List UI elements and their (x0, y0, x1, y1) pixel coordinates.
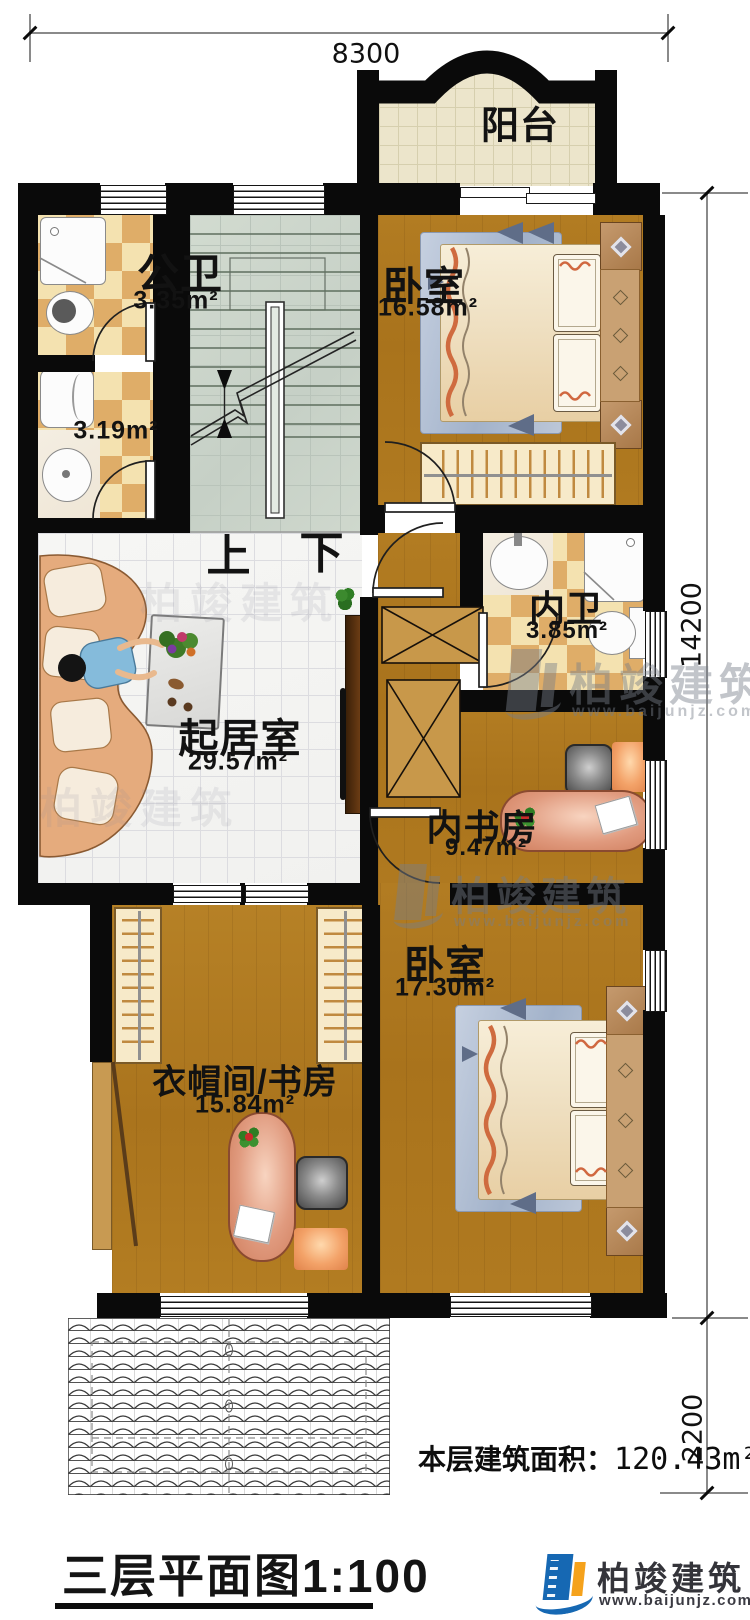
floor-plan-page: 8300 14200 2200 阳台 公卫 3.35m² 3.19m² 卧室 1… (0, 0, 750, 1620)
room-area-bedroom-bottom: 17.30m² (395, 974, 495, 1003)
bouquet-group (159, 631, 198, 712)
dim-ext-line (672, 1317, 748, 1319)
logo-swoosh-icon (533, 1581, 595, 1619)
dim-ext-line (667, 14, 669, 62)
company-logo: 柏竣建筑 www.baijunjz.com (535, 1550, 747, 1616)
room-area-cloak-study: 15.84m² (195, 1091, 295, 1120)
watermark-site: www.baijunjz.com (572, 703, 750, 721)
room-area-inner-bath: 3.85m² (526, 617, 608, 645)
room-label-balcony: 阳台 (481, 95, 559, 150)
door-arc-living (373, 523, 443, 593)
dim-ext-line (29, 14, 31, 62)
roof-terrace (68, 1318, 390, 1495)
watermark-site: www.baijunjz.com (454, 913, 631, 930)
watermark-center: 柏竣建筑 www.baijunjz.com (505, 645, 750, 740)
door-arc-bedroom-top (385, 442, 455, 512)
person-arm (118, 672, 154, 677)
shower-corner-line (40, 258, 86, 283)
hall-closets (382, 607, 483, 797)
dim-line-top (30, 32, 668, 34)
watermark-faint: 柏竣建筑 (140, 570, 340, 631)
title-underline (55, 1603, 373, 1609)
room-area-laundry: 3.19m² (73, 417, 158, 446)
person-arm (120, 641, 162, 648)
floor-area-value: 120.43m² (614, 1442, 750, 1477)
logo-site: www.baijunjz.com (599, 1592, 750, 1609)
dim-top-label: 8300 (332, 39, 401, 70)
door-arc-laundry (93, 461, 151, 519)
person-head (58, 654, 86, 682)
room-area-living: 29.57m² (188, 748, 288, 777)
door-leaf-cloak (113, 1062, 136, 1246)
floor-area-note: 本层建筑面积：120.43m² (418, 1438, 750, 1478)
drawing-title: 三层平面图1:100 (62, 1540, 430, 1606)
watermark-lower: 柏竣建筑 www.baijunjz.com (393, 860, 643, 950)
bed2-decor (462, 998, 606, 1214)
watermark-faint: 柏竣建筑 (40, 775, 240, 836)
floor-area-label: 本层建筑面积： (418, 1444, 614, 1475)
room-area-bedroom-top: 16.58m² (378, 294, 478, 323)
stair-arrow-down-icon (217, 370, 232, 390)
room-area-public-bath: 3.35m² (133, 287, 218, 316)
room-area-inner-study: 9.47m² (445, 834, 527, 862)
dim-line-right (706, 193, 708, 1493)
